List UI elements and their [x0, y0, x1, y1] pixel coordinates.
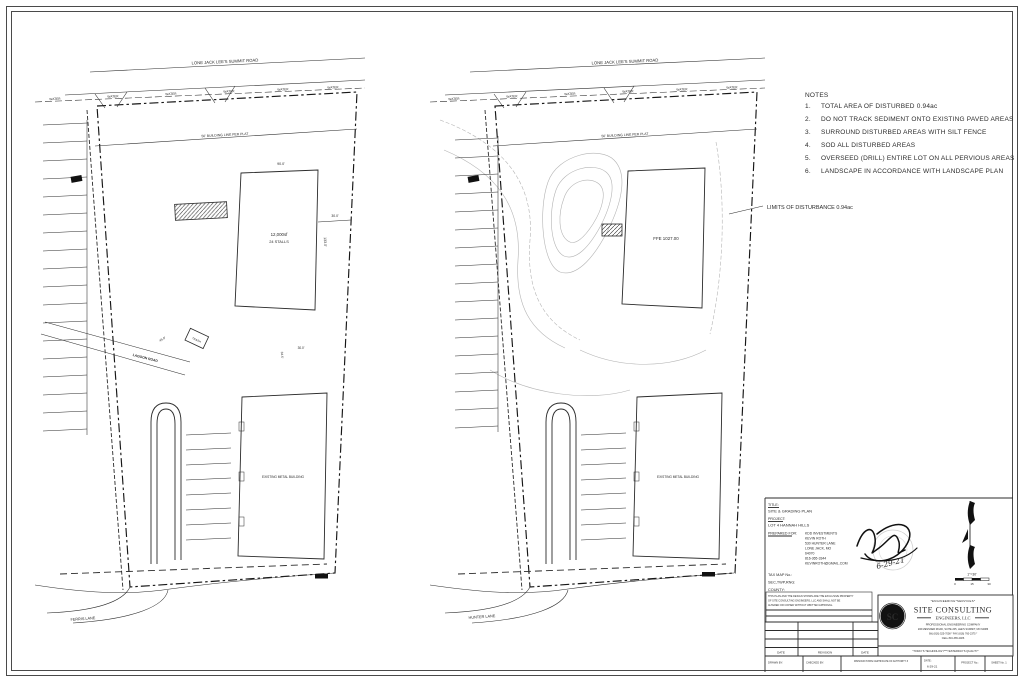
- street-name-label: HUNTER LANE: [468, 614, 495, 620]
- scale-bar: 1"=30' 0 15 30: [954, 573, 991, 587]
- note-number: 6.: [805, 168, 821, 175]
- loop-drive: [546, 403, 576, 564]
- note-item: 2. DO NOT TRACK SEDIMENT ONTO EXISTING P…: [805, 116, 1017, 123]
- water-label: WATER: [223, 89, 235, 94]
- prepared-for-line: 816-365-3344: [805, 557, 826, 561]
- water-label: WATER: [165, 92, 177, 97]
- engineer-signature: 6-29-21: [857, 525, 917, 571]
- company-subtitle: PROFESSIONAL ENGINEERING COMPANY: [926, 623, 981, 627]
- note-number: 5.: [805, 155, 821, 162]
- company-address: 206 MESSNER ROAD, SUITE 205, LEE'S SUMMI…: [918, 628, 989, 631]
- title-block: TITLE: SITE & GRADING PLAN PROJECT: LOT …: [765, 498, 1013, 672]
- existing-metal-building: EXISTING METAL BUILDING: [633, 393, 722, 559]
- lagoon-road: LAGOON ROAD 45.0' 34.5' 30.0': [41, 322, 305, 375]
- dim-side: 34.5': [280, 351, 284, 358]
- building-setback-line: 50' BUILDING LINE PER PLAT: [493, 129, 757, 146]
- note-text: SURROUND DISTURBED AREAS WITH SILT FENCE: [821, 129, 987, 136]
- setback-label: 50' BUILDING LINE PER PLAT: [201, 132, 248, 138]
- road-name-label: LONE JACK LEE'S SUMMIT ROAD: [591, 57, 658, 65]
- notes-block: NOTES 1. TOTAL AREA OF DISTURBED 0.94ac …: [805, 92, 1017, 181]
- prepared-for-line: 64070: [805, 552, 815, 556]
- silt-fence-line: [485, 110, 522, 590]
- scale-text: 1"=30': [967, 573, 977, 577]
- water-label: WATER: [277, 87, 289, 92]
- project-label: PROJECT:: [768, 517, 786, 521]
- note-text: TOTAL AREA OF DISTURBED 0.94ac: [821, 103, 937, 110]
- building-area-label: 12,000sf: [271, 232, 289, 237]
- south-roads: FERRIS LANE: [35, 564, 335, 623]
- company-monogram: SC: [887, 612, 899, 622]
- water-label: WATER: [506, 94, 518, 99]
- dumpster-pad: [175, 202, 228, 221]
- water-label: WATER: [107, 94, 119, 99]
- prepared-for-line: KEVIN ROTH: [805, 537, 826, 541]
- street-name-label: FERRIS LANE: [70, 616, 96, 622]
- limits-callout-label: LIMITS OF DISTURBANCE 0.94ac: [767, 205, 853, 211]
- parking-stalls-court: [581, 433, 626, 540]
- drawn-by-label: DRAWN BY:: [768, 661, 783, 665]
- title-label: TITLE:: [768, 503, 779, 507]
- certificate-label: MISSOURI STATE CERTIFICATE OF AUTHORITY …: [854, 660, 909, 663]
- note-item: 3. SURROUND DISTURBED AREAS WITH SILT FE…: [805, 129, 1017, 136]
- building-stalls-label: 24 STALLS: [269, 239, 289, 244]
- project-no-label: PROJECT No.:: [961, 661, 979, 665]
- existing-metal-building: EXISTING METAL BUILDING: [238, 393, 327, 559]
- building-setback-line: 50' BUILDING LINE PER PLAT: [95, 129, 357, 146]
- revision-col-revision: REVISION: [818, 651, 832, 655]
- county-label: COUNTY:: [768, 588, 785, 592]
- dim-depth: 133.0': [323, 237, 327, 247]
- water-label: WATER: [622, 89, 634, 94]
- note-text: DO NOT TRACK SEDIMENT ONTO EXISTING PAVE…: [821, 116, 1014, 123]
- title-section: TITLE: SITE & GRADING PLAN PROJECT: LOT …: [768, 503, 848, 592]
- proposed-building: FFE 1027.00: [622, 168, 705, 308]
- drawing-sheet: LONE JACK LEE'S SUMMIT ROAD WATER WATER …: [0, 0, 1024, 682]
- note-text: LANDSCAPE IN ACCORDANCE WITH LANDSCAPE P…: [821, 168, 1003, 175]
- dim-rear: 30.0': [298, 346, 305, 350]
- bottom-row: DRAWN BY: CHECKED BY: MISSOURI STATE CER…: [765, 656, 1013, 672]
- prepared-for-line: KDD INVESTMENTS: [805, 532, 838, 536]
- project-value: LOT 4 HANNAH HILLS: [768, 523, 810, 528]
- water-label: WATER: [49, 97, 61, 102]
- company-services: *ENGINEERING*SERVICES*: [931, 599, 976, 603]
- scale-tick: 0: [954, 582, 956, 586]
- note-text: OVERSEED (DRILL) ENTIRE LOT ON ALL PERVI…: [821, 155, 1015, 162]
- date-label: DATE:: [924, 659, 932, 663]
- water-label: WATER: [676, 87, 688, 92]
- parking-stalls-court: [186, 433, 231, 540]
- disclaimer-line: OF SITE CONSULTING ENGINEERS, LLC AND SH…: [768, 600, 841, 603]
- disclaimer-line: ALTERED OR COPIED WITHOUT WRITTEN APPROV…: [768, 604, 833, 607]
- scale-tick: 15: [970, 582, 974, 586]
- prepared-for-line: KEVINROTH@GMAIL.COM: [805, 562, 848, 566]
- proposed-building: 12,000sf 24 STALLS 90.0' 133.0' 30.0': [235, 162, 351, 310]
- road-top: LONE JACK LEE'S SUMMIT ROAD: [65, 57, 365, 108]
- disclaimer-box: THIS PLAN AND THE DESIGN SHOWN ARE THE E…: [766, 592, 872, 622]
- grading-plan-right: LONE JACK LEE'S SUMMIT ROAD WATER WATER …: [430, 50, 765, 625]
- property-boundary: [97, 92, 357, 587]
- dim-drive: 45.0': [159, 335, 167, 342]
- dumpster-pad: [602, 224, 622, 236]
- existing-building-label: EXISTING METAL BUILDING: [262, 475, 304, 479]
- water-label: WATER: [448, 97, 460, 102]
- trash-label: TRASH: [191, 336, 201, 344]
- note-number: 1.: [805, 103, 821, 110]
- existing-building-label: EXISTING METAL BUILDING: [657, 475, 699, 479]
- trash-enclosure: TRASH: [185, 328, 209, 348]
- south-roads: HUNTER LANE: [430, 564, 734, 623]
- grading-contours: [440, 120, 722, 396]
- parking-stalls-west: [43, 120, 87, 435]
- limits-callout: LIMITS OF DISTURBANCE 0.94ac: [725, 196, 925, 220]
- revision-col-date2: DATE: [861, 651, 869, 655]
- note-text: SOD ALL DISTURBED AREAS: [821, 142, 915, 149]
- water-label: WATER: [564, 92, 576, 97]
- loop-drive: [151, 403, 181, 564]
- sheet-no-label: SHEET No. 1: [991, 661, 1007, 665]
- note-item: 5. OVERSEED (DRILL) ENTIRE LOT ON ALL PE…: [805, 155, 1017, 162]
- company-block: SC *ENGINEERING*SERVICES* SITE CONSULTIN…: [878, 595, 1013, 656]
- prepared-for-line: LONE JACK, MO: [805, 547, 832, 551]
- disclaimer-line: THIS PLAN AND THE DESIGN SHOWN ARE THE E…: [768, 595, 854, 598]
- date-value: 6-29-21: [927, 665, 938, 669]
- scale-tick: 30: [987, 582, 991, 586]
- company-phone: (W) (816) 525-7008 * FAX (816) 760-2375 …: [929, 633, 977, 636]
- property-boundary-limits: [495, 92, 757, 587]
- water-label: WATER: [327, 85, 339, 90]
- survey-markers: [71, 175, 328, 578]
- revision-col-date: DATE: [777, 651, 785, 655]
- note-number: 2.: [805, 116, 821, 123]
- ffe-label: FFE 1027.00: [653, 236, 679, 241]
- company-name: SITE CONSULTING: [914, 606, 992, 615]
- note-item: 6. LANDSCAPE IN ACCORDANCE WITH LANDSCAP…: [805, 168, 1017, 175]
- notes-heading: NOTES: [805, 92, 1017, 99]
- site-plan-left: LONE JACK LEE'S SUMMIT ROAD WATER WATER …: [35, 50, 365, 625]
- sec-twp-rng-label: SEC,TWP,RNG:: [768, 581, 795, 585]
- dim-offset: 30.0': [331, 214, 339, 218]
- dim-width: 90.0': [277, 162, 285, 166]
- company-cell: CELL 816-365-2486: [942, 637, 965, 640]
- prepared-for-line: 530 HUNTER LANE: [805, 542, 836, 546]
- prepared-for-label: PREPARED FOR:: [768, 532, 797, 536]
- north-arrow: [962, 501, 975, 569]
- water-main-line: WATER WATER WATER WATER WATER WATER: [35, 85, 365, 102]
- note-item: 1. TOTAL AREA OF DISTURBED 0.94ac: [805, 103, 1017, 110]
- water-label: WATER: [726, 85, 738, 90]
- note-item: 4. SOD ALL DISTURBED AREAS: [805, 142, 1017, 149]
- checked-by-label: CHECKED BY:: [806, 661, 824, 665]
- silt-fence-line: [87, 110, 123, 590]
- road-name-label: LONE JACK LEE'S SUMMIT ROAD: [191, 57, 258, 65]
- note-number: 3.: [805, 129, 821, 136]
- tax-map-label: TAX MAP No.:: [768, 573, 792, 577]
- note-number: 4.: [805, 142, 821, 149]
- company-motto: "TODAY'S TECHNOLOGY***YESTERDAY'S QUALIT…: [912, 649, 979, 653]
- title-value: SITE & GRADING PLAN: [768, 509, 812, 514]
- lagoon-road-label: LAGOON ROAD: [132, 353, 159, 363]
